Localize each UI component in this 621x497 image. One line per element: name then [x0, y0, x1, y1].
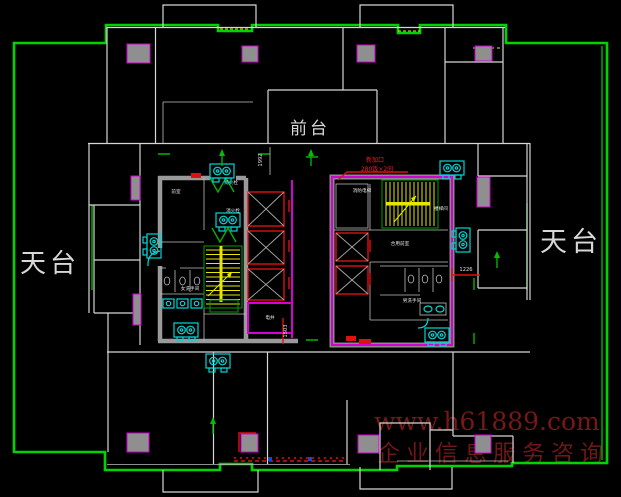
fire-elevator-label: 消防电梯 — [353, 187, 372, 194]
annotation-new-opening: 新加口 — [366, 156, 384, 164]
rooftop-right-label: 天台 — [540, 227, 602, 258]
dim-1503: 1503 — [283, 324, 289, 337]
stairwell-label: 楼梯间 — [434, 205, 448, 212]
shaft-room-label: 电井 — [265, 314, 275, 321]
front-desk-label: 前台 — [290, 119, 330, 139]
vestibule-label: 前室 — [171, 188, 181, 195]
rooftop-left-label: 天台 — [20, 249, 80, 279]
dim-1226: 1226 — [459, 267, 472, 273]
watermark-url: www.h61889.com — [374, 407, 600, 436]
annotation-new-opening-size: 280饭×2间 — [361, 165, 393, 173]
floor-plan-canvas: www.h61889.com 企业信息服务咨询 — [0, 0, 621, 497]
shared-lobby-label: 合用前室 — [391, 240, 410, 247]
dim-1992: 1992 — [258, 153, 264, 166]
floor-plan-screenshot: www.h61889.com 企业信息服务咨询 — [0, 0, 621, 497]
mens-toilet-label: 男洗手间 — [403, 297, 422, 304]
stairs-right-core — [382, 180, 438, 228]
womens-toilet-label: 女洗手间 — [181, 285, 200, 292]
